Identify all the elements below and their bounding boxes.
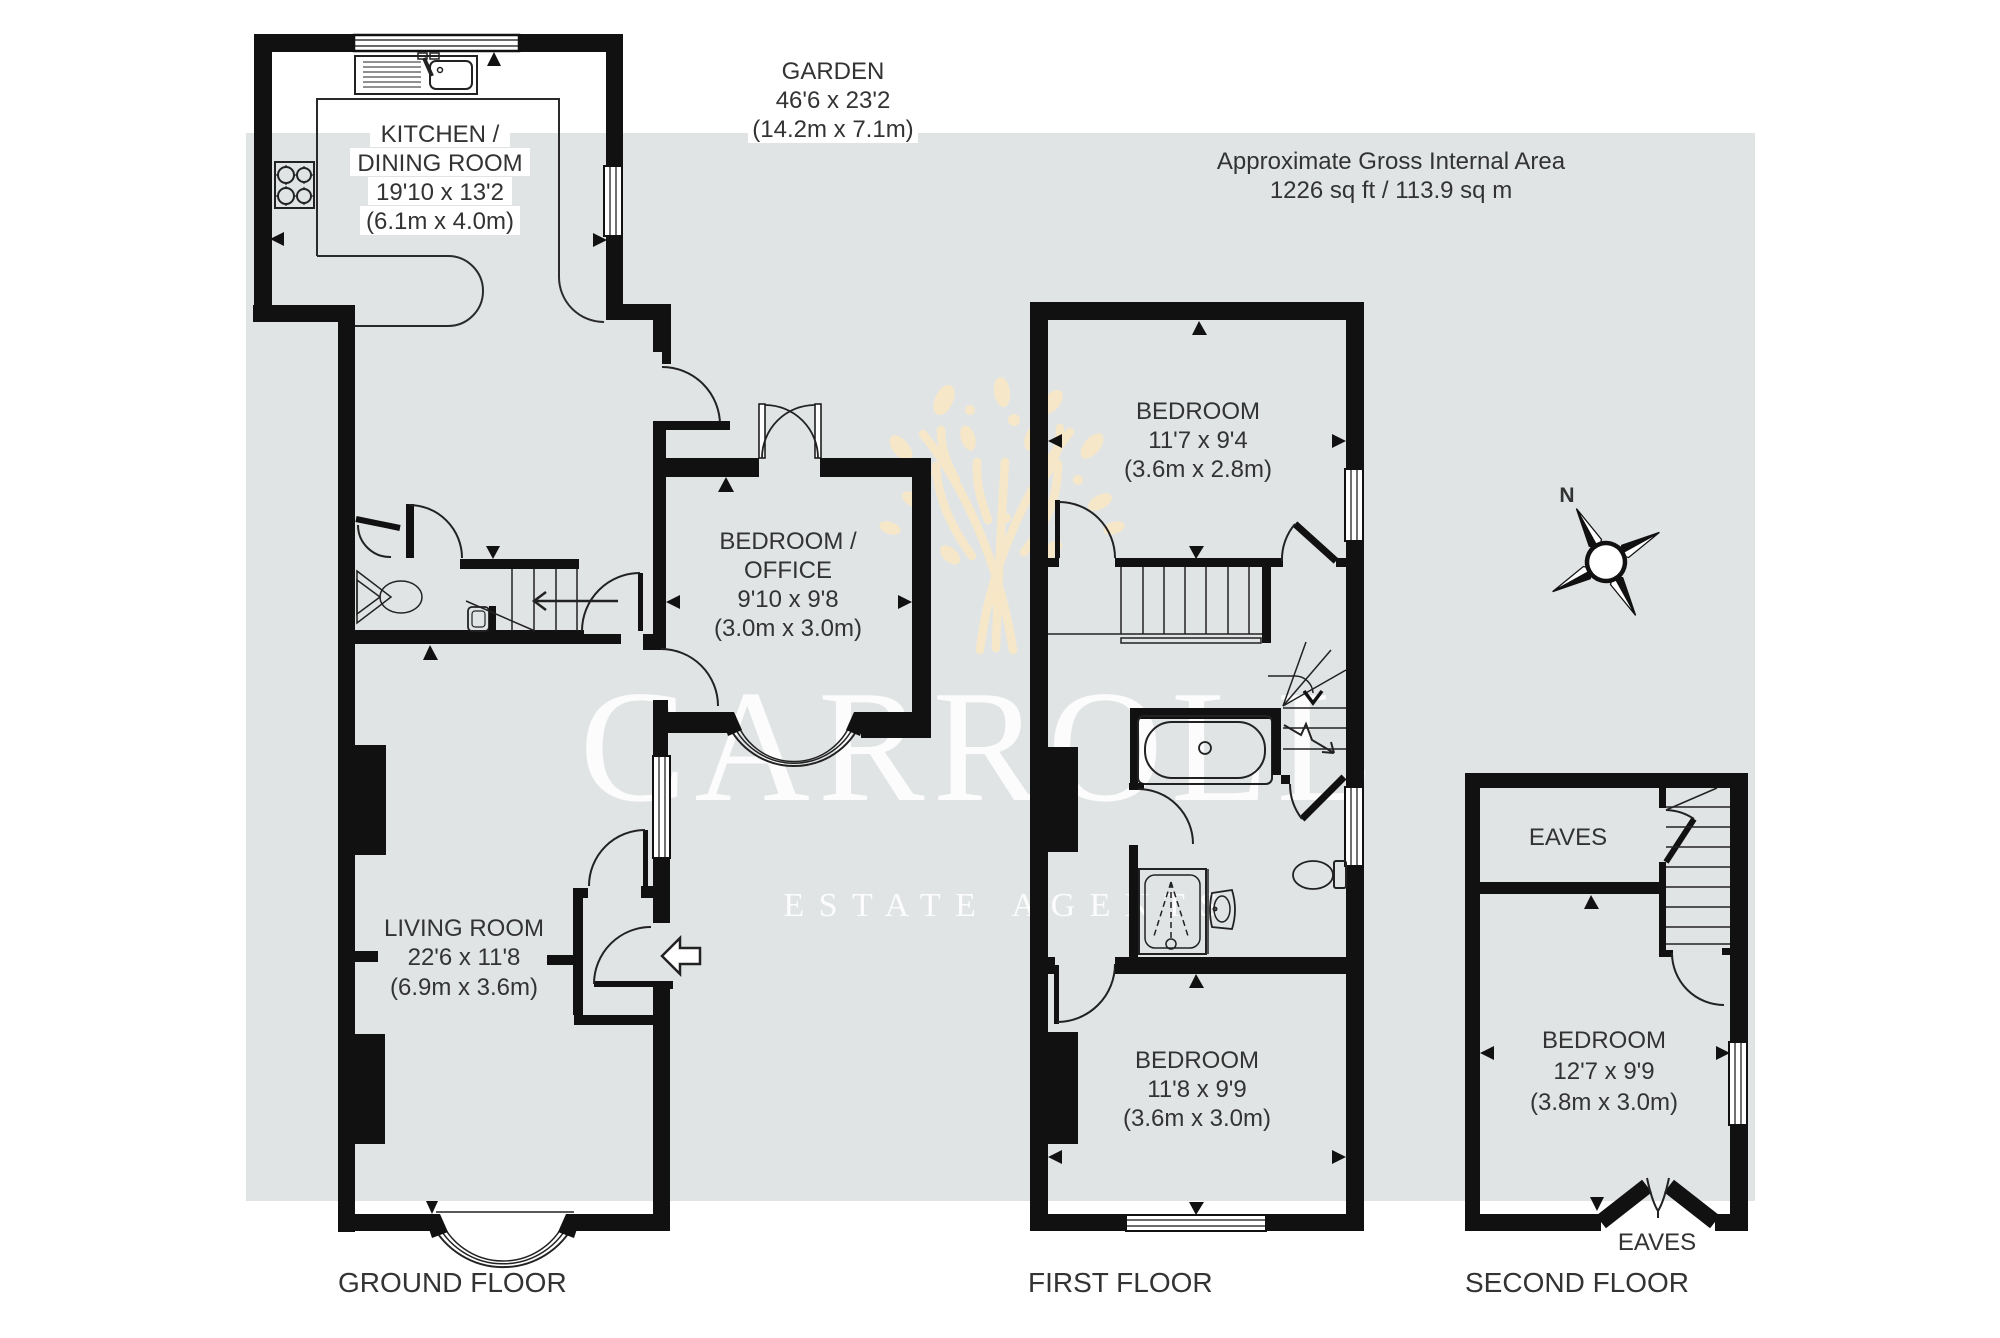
svg-text:EAVES: EAVES	[1618, 1229, 1696, 1256]
svg-text:12'7 x 9'9: 12'7 x 9'9	[1553, 1058, 1654, 1085]
svg-text:19'10 x 13'2: 19'10 x 13'2	[376, 179, 504, 206]
svg-text:LIVING ROOM: LIVING ROOM	[384, 915, 544, 942]
svg-text:OFFICE: OFFICE	[744, 557, 832, 584]
svg-text:(14.2m x 7.1m): (14.2m x 7.1m)	[752, 116, 913, 143]
svg-text:CARROLL: CARROLL	[580, 657, 1383, 835]
svg-text:FIRST FLOOR: FIRST FLOOR	[1028, 1267, 1213, 1298]
svg-text:22'6 x 11'8: 22'6 x 11'8	[408, 944, 521, 971]
svg-text:46'6 x 23'2: 46'6 x 23'2	[776, 87, 891, 114]
svg-text:11'7 x 9'4: 11'7 x 9'4	[1148, 427, 1247, 454]
svg-text:GROUND FLOOR: GROUND FLOOR	[338, 1267, 567, 1298]
svg-text:BEDROOM: BEDROOM	[1542, 1027, 1666, 1054]
svg-text:(6.1m x 4.0m): (6.1m x 4.0m)	[366, 208, 514, 235]
svg-text:KITCHEN /: KITCHEN /	[381, 121, 500, 148]
svg-text:BEDROOM /: BEDROOM /	[719, 528, 857, 555]
svg-text:EAVES: EAVES	[1529, 824, 1607, 851]
svg-text:ESTATE AGENTS: ESTATE AGENTS	[783, 887, 1232, 924]
svg-text:9'10 x 9'8: 9'10 x 9'8	[737, 586, 838, 613]
svg-text:SECOND FLOOR: SECOND FLOOR	[1465, 1267, 1689, 1298]
svg-text:DINING ROOM: DINING ROOM	[357, 150, 522, 177]
svg-text:(3.8m x 3.0m): (3.8m x 3.0m)	[1530, 1089, 1678, 1116]
svg-text:GARDEN: GARDEN	[782, 58, 885, 85]
svg-text:(3.0m x 3.0m): (3.0m x 3.0m)	[714, 615, 862, 642]
svg-text:1226 sq ft / 113.9 sq m: 1226 sq ft / 113.9 sq m	[1270, 177, 1512, 204]
svg-text:Approximate Gross Internal Are: Approximate Gross Internal Area	[1217, 148, 1566, 175]
svg-text:11'8 x 9'9: 11'8 x 9'9	[1147, 1076, 1246, 1103]
svg-text:BEDROOM: BEDROOM	[1136, 398, 1260, 425]
svg-text:N: N	[1559, 484, 1574, 507]
svg-text:(3.6m x 3.0m): (3.6m x 3.0m)	[1123, 1105, 1271, 1132]
svg-text:(6.9m x 3.6m): (6.9m x 3.6m)	[390, 974, 538, 1001]
svg-text:BEDROOM: BEDROOM	[1135, 1047, 1259, 1074]
svg-text:(3.6m x 2.8m): (3.6m x 2.8m)	[1124, 456, 1272, 483]
